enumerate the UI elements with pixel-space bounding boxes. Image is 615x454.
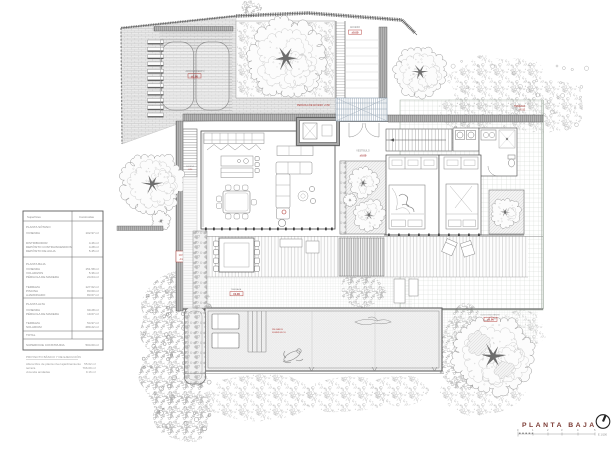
svg-text:9.16 m²: 9.16 m²	[86, 370, 96, 374]
svg-text:VESTIBULO: VESTIBULO	[356, 150, 370, 153]
svg-text:PLANTA ALTA: PLANTA ALTA	[26, 302, 45, 306]
svg-text:24.64 m²: 24.64 m²	[87, 275, 99, 279]
svg-text:BAJADA: BAJADA	[186, 165, 194, 168]
svg-text:PELDAÑOS: PELDAÑOS	[272, 328, 284, 331]
svg-text:vivienda anidadas: vivienda anidadas	[26, 370, 51, 374]
svg-text:DEPÓSITO DE AGUA: DEPÓSITO DE AGUA	[26, 248, 56, 253]
svg-text:VIVIENDA: VIVIENDA	[26, 231, 40, 235]
svg-text:E 1/100: E 1/100	[598, 433, 607, 437]
svg-text:PLANTA SÓTANO: PLANTA SÓTANO	[26, 224, 51, 229]
svg-text:±0.00: ±0.00	[352, 30, 359, 34]
svg-text:ACCESO: ACCESO	[350, 26, 360, 29]
svg-text:PLANTA BAJA: PLANTA BAJA	[522, 422, 597, 429]
svg-text:PROYECTO BÁSICO Y DE EJECUCIÓN: PROYECTO BÁSICO Y DE EJECUCIÓN	[26, 354, 81, 359]
svg-text:AJARDINADO: AJARDINADO	[26, 293, 46, 297]
svg-text:TERRAZA: TERRAZA	[231, 288, 242, 291]
svg-text:5.45 m²: 5.45 m²	[89, 249, 99, 253]
svg-text:280.22 m²: 280.22 m²	[85, 325, 99, 329]
svg-text:504.60 m²: 504.60 m²	[85, 343, 99, 347]
svg-text:APARCAMIENTO: APARCAMIENTO	[186, 70, 205, 73]
svg-text:±0.00: ±0.00	[487, 318, 494, 322]
svg-text:+0.00: +0.00	[519, 109, 526, 112]
svg-text:PERGOLA DE ACCESO +3.50: PERGOLA DE ACCESO +3.50	[297, 104, 330, 107]
svg-text:±0.00: ±0.00	[360, 154, 367, 158]
svg-text:PÉRGOLA DE MADERA: PÉRGOLA DE MADERA	[26, 274, 59, 279]
svg-text:Construidas: Construidas	[79, 215, 95, 219]
svg-text:PÉRGOLA DE MADERA: PÉRGOLA DE MADERA	[26, 311, 59, 316]
svg-text:±0.00: ±0.00	[233, 292, 240, 296]
svg-text:TOTAL: TOTAL	[26, 333, 36, 337]
svg-text:SUPERFICIE CONSTRUIDA: SUPERFICIE CONSTRUIDA	[26, 343, 65, 347]
svg-text:SUMERGIDOS: SUMERGIDOS	[272, 332, 286, 334]
svg-text:83.67 m²: 83.67 m²	[87, 293, 99, 297]
svg-text:OLIVO EXISTENTE: OLIVO EXISTENTE	[480, 315, 500, 317]
svg-text:±0.00: ±0.00	[191, 74, 198, 78]
svg-text:Superficies: Superficies	[27, 215, 41, 219]
svg-text:SOLARIUM: SOLARIUM	[26, 325, 42, 329]
svg-text:PLANTA BAJA: PLANTA BAJA	[26, 262, 46, 266]
svg-text:102.97 m²: 102.97 m²	[85, 231, 99, 235]
svg-text:19.67 m²: 19.67 m²	[87, 312, 99, 316]
